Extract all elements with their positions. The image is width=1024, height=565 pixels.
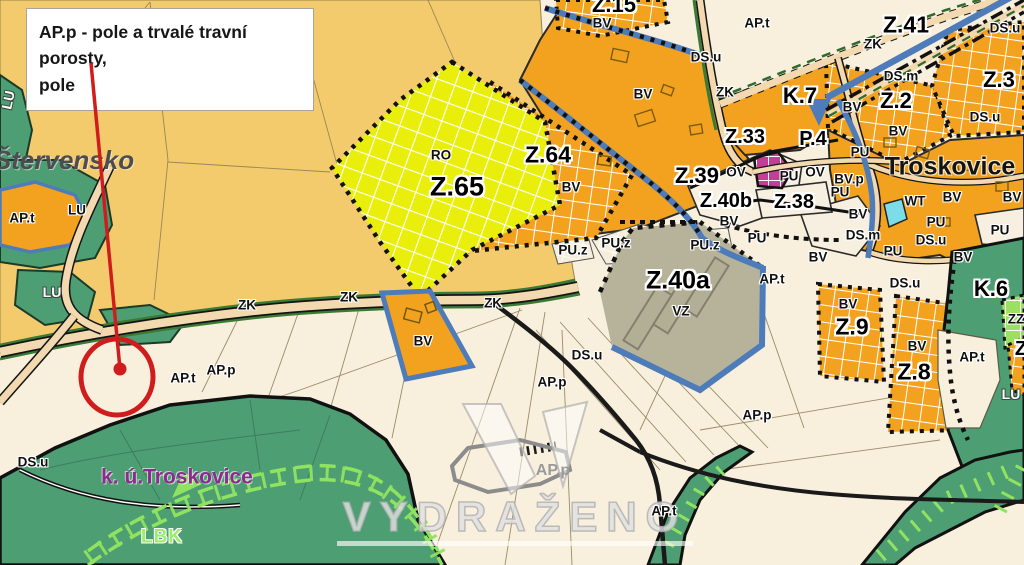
zone-z9	[818, 284, 884, 382]
annotation-callout: AP.p - pole a trvalé travní porosty, pol…	[26, 8, 314, 111]
callout-line2: pole	[39, 72, 301, 98]
callout-line1: AP.p - pole a trvalé travní porosty,	[39, 19, 301, 72]
zoning-map-canvas: VYDRAŽENO Z.15BVAP.tDS.uZ.41ZKDS.uZ.3DS.…	[0, 0, 1024, 565]
zone-corner-orange	[1008, 338, 1024, 395]
